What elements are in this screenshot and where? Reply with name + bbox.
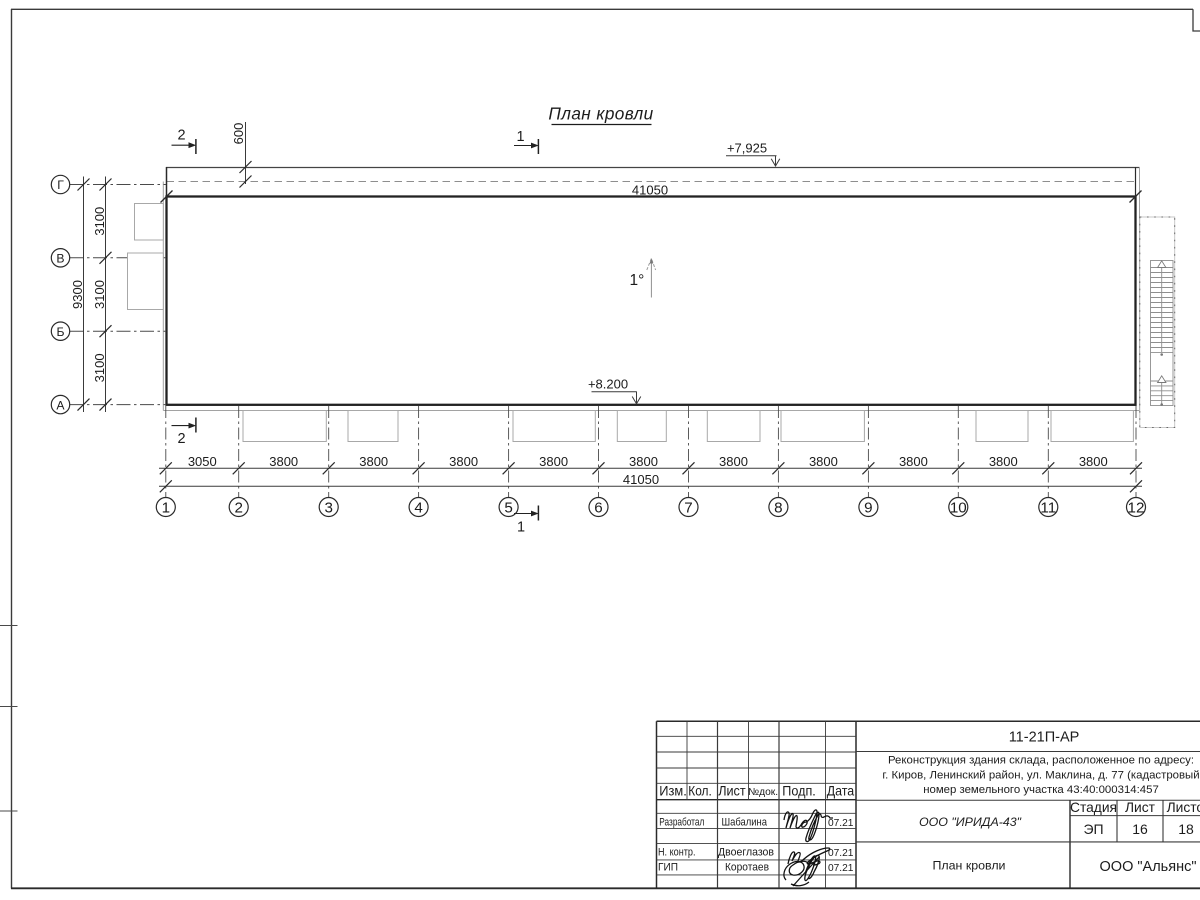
svg-text:Н. контр.: Н. контр. (658, 847, 696, 859)
svg-text:11-21П-АР: 11-21П-АР (1009, 730, 1080, 746)
svg-text:4: 4 (414, 500, 422, 517)
svg-text:Шабалина: Шабалина (722, 816, 768, 828)
svg-text:9: 9 (864, 500, 872, 517)
svg-text:Лист: Лист (718, 784, 746, 799)
svg-text:+7,925: +7,925 (727, 141, 767, 156)
svg-text:3100: 3100 (92, 207, 107, 236)
svg-text:07.21: 07.21 (828, 848, 854, 859)
svg-text:11: 11 (1040, 500, 1056, 517)
svg-text:41050: 41050 (632, 183, 668, 198)
svg-text:3800: 3800 (539, 454, 568, 469)
svg-text:3100: 3100 (92, 280, 107, 309)
svg-text:ЭП: ЭП (1083, 821, 1103, 837)
svg-text:3800: 3800 (269, 454, 298, 469)
svg-text:3: 3 (324, 500, 332, 517)
svg-text:600: 600 (231, 123, 246, 145)
svg-text:3050: 3050 (188, 454, 217, 469)
svg-text:18: 18 (1178, 821, 1194, 837)
svg-text:г. Киров, Ленинский район, ул.: г. Киров, Ленинский район, ул. Маклина, … (882, 769, 1199, 781)
svg-text:+8.200: +8.200 (588, 377, 628, 392)
svg-text:3800: 3800 (449, 454, 478, 469)
svg-text:8: 8 (774, 500, 782, 517)
svg-text:План кровли: План кровли (548, 104, 653, 124)
svg-text:План кровли: План кровли (933, 859, 1006, 873)
svg-text:Двоеглазов: Двоеглазов (718, 847, 774, 859)
svg-text:Б: Б (57, 325, 65, 339)
svg-text:Г: Г (57, 178, 64, 192)
svg-text:16: 16 (1132, 821, 1148, 837)
svg-text:Реконструкция здания склада, р: Реконструкция здания склада, расположенн… (888, 755, 1194, 767)
svg-text:2: 2 (234, 500, 242, 517)
svg-text:5: 5 (504, 500, 512, 517)
svg-text:3800: 3800 (359, 454, 388, 469)
svg-text:41050: 41050 (623, 472, 659, 487)
svg-text:Разработал: Разработал (659, 816, 704, 828)
svg-text:12: 12 (1128, 500, 1145, 517)
svg-text:07.21: 07.21 (828, 818, 854, 829)
svg-text:07.21: 07.21 (828, 863, 854, 874)
svg-text:2: 2 (177, 431, 185, 447)
svg-text:7: 7 (684, 500, 692, 517)
svg-text:3800: 3800 (809, 454, 838, 469)
svg-text:Стадия: Стадия (1070, 800, 1117, 815)
svg-text:1: 1 (516, 129, 524, 145)
svg-text:1°: 1° (630, 272, 645, 289)
svg-text:ООО "Альянс": ООО "Альянс" (1100, 859, 1197, 875)
svg-text:9300: 9300 (70, 280, 85, 309)
svg-text:3800: 3800 (629, 454, 658, 469)
svg-text:Подп.: Подп. (782, 784, 816, 799)
svg-text:1: 1 (162, 500, 170, 517)
svg-text:номер земельного участка 43:40: номер земельного участка 43:40:000314:45… (923, 784, 1159, 796)
svg-text:А: А (56, 398, 65, 412)
svg-text:Кол.: Кол. (688, 784, 712, 799)
svg-text:3800: 3800 (989, 454, 1018, 469)
svg-text:2: 2 (177, 128, 185, 144)
svg-text:3800: 3800 (719, 454, 748, 469)
svg-text:Коротаев: Коротаев (725, 861, 769, 873)
svg-text:1: 1 (517, 520, 525, 536)
svg-text:ГИП: ГИП (658, 861, 678, 873)
svg-text:№док.: №док. (748, 787, 778, 798)
svg-text:В: В (56, 252, 64, 266)
svg-text:ООО "ИРИДА-43": ООО "ИРИДА-43" (919, 815, 1022, 829)
svg-text:Листов: Листов (1167, 800, 1200, 815)
svg-text:6: 6 (594, 500, 602, 517)
svg-text:3800: 3800 (1079, 454, 1108, 469)
svg-text:Лист: Лист (1125, 800, 1156, 815)
svg-text:3100: 3100 (92, 353, 107, 382)
svg-text:10: 10 (950, 500, 967, 517)
svg-text:Дата: Дата (827, 784, 855, 799)
svg-text:3800: 3800 (899, 454, 928, 469)
svg-text:Изм.: Изм. (659, 784, 687, 799)
